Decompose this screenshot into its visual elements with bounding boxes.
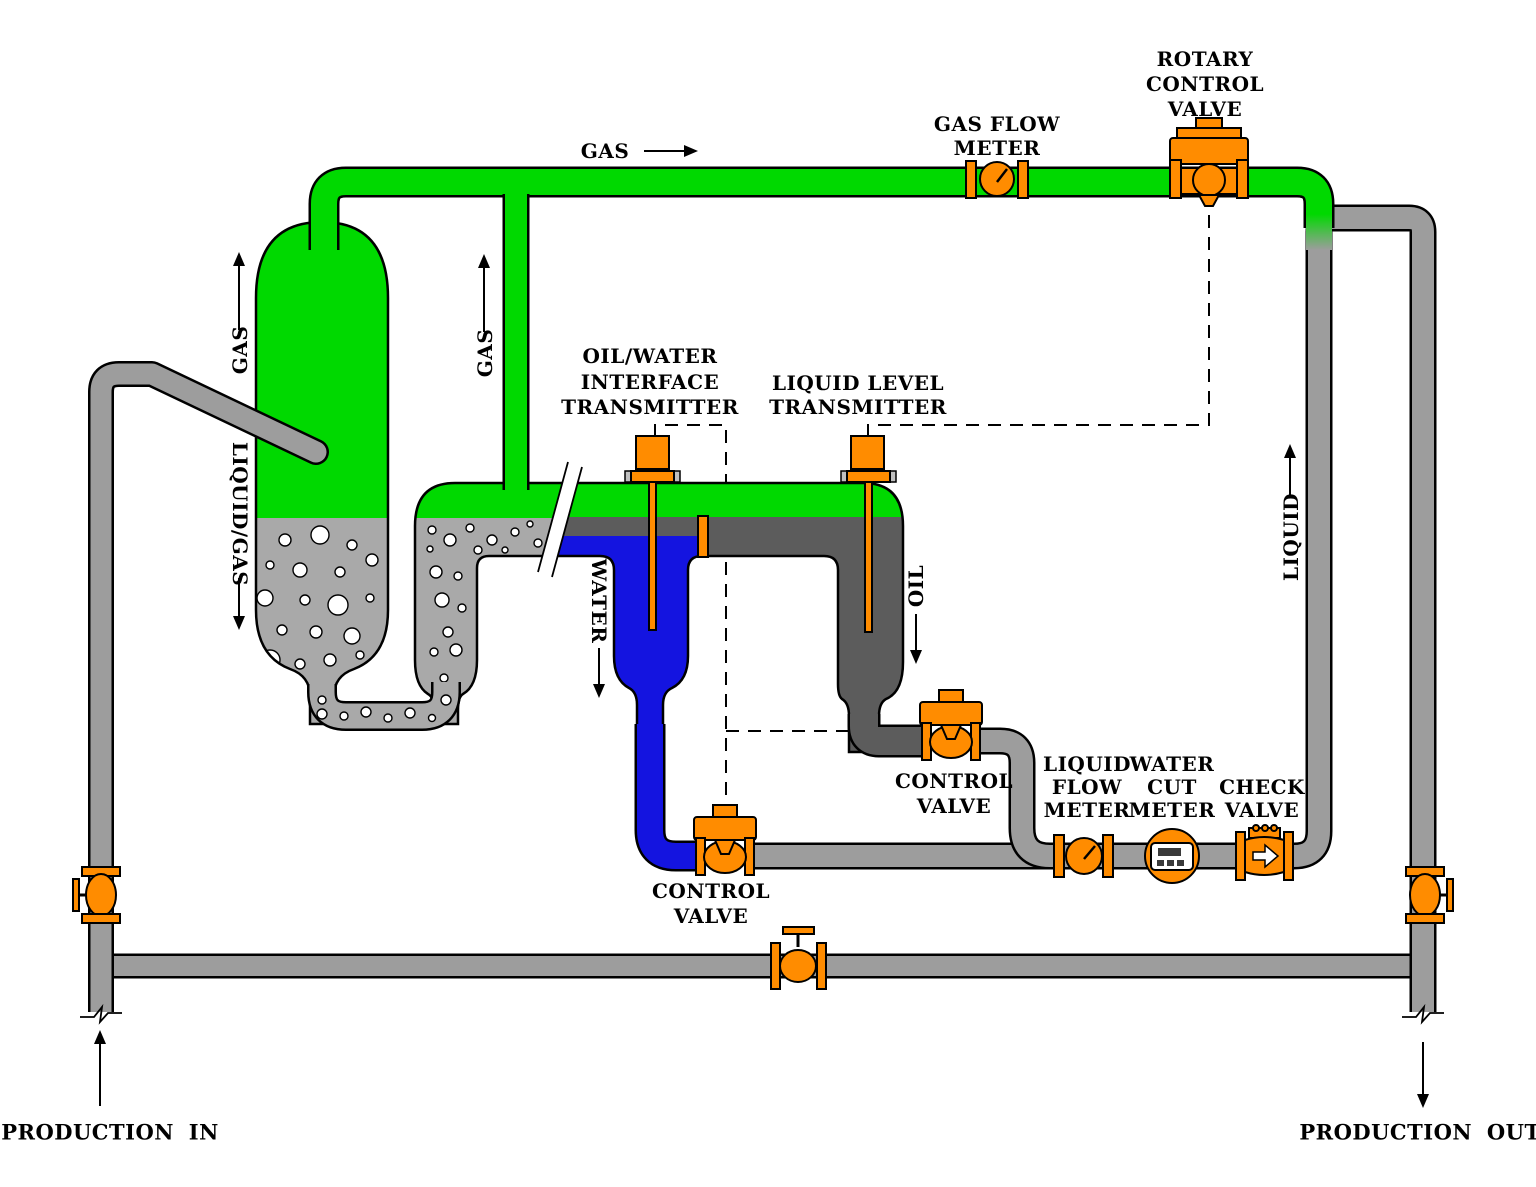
pipe-break-right — [1402, 1007, 1444, 1026]
production-out-label: PRODUCTION OUT — [1299, 1122, 1536, 1143]
rotary-control-valve-label: CONTROL — [1146, 74, 1264, 94]
oil-control-valve-label: CONTROL — [895, 771, 1013, 791]
water-stream-label: WATER — [589, 559, 609, 644]
oil-stream-label: OIL — [906, 565, 926, 607]
water-cut-meter-label: METER — [1129, 800, 1216, 820]
rotary-control-valve-icon — [1170, 118, 1248, 206]
liquid-up-arrow — [1284, 444, 1296, 498]
oil-control-valve-label: VALVE — [917, 796, 991, 816]
liquid-flow-meter-label: FLOW — [1052, 777, 1122, 797]
bypass-valve-icon — [771, 927, 826, 989]
process-diagram: GAS ROTARY CONTROL VALVE GAS FLOW METER … — [0, 0, 1536, 1187]
water-cut-meter-label: CUT — [1147, 777, 1197, 797]
gas-flow-meter-label: METER — [954, 138, 1041, 158]
oil-water-interface-transmitter-label: TRANSMITTER — [561, 397, 739, 417]
riser-gas-label: GAS — [475, 329, 495, 378]
gas-flow-meter-label: GAS FLOW — [934, 114, 1060, 134]
production-in-arrow — [94, 1030, 106, 1106]
oil-control-valve-icon — [920, 690, 982, 760]
water-cut-meter-label: WATER — [1130, 754, 1215, 774]
weir-plate — [698, 516, 708, 557]
gas-flow-arrow — [644, 145, 698, 157]
production-out-arrow — [1417, 1042, 1429, 1108]
oil-down-arrow — [910, 614, 922, 664]
liquid-level-transmitter-label: TRANSMITTER — [769, 397, 947, 417]
production-in-label: PRODUCTION IN — [1, 1122, 219, 1143]
vessel-gas-label: GAS — [230, 326, 250, 375]
gas-up-arrow — [233, 252, 245, 330]
gas-stream-label: GAS — [581, 141, 630, 161]
pipe-break-left — [80, 1007, 122, 1026]
vessel-liquid-gas-label: LIQUID/GAS — [230, 442, 250, 586]
liquid-flow-meter-label: METER — [1044, 800, 1131, 820]
oil-water-interface-transmitter-label: OIL/WATER — [583, 346, 718, 366]
oil-water-interface-transmitter-label: INTERFACE — [581, 372, 720, 392]
rotary-control-valve-label: ROTARY — [1157, 49, 1254, 69]
water-control-valve-label: VALVE — [674, 906, 748, 926]
diagram-canvas — [0, 0, 1536, 1187]
outlet-block-valve-icon — [1406, 867, 1453, 923]
water-control-valve-label: CONTROL — [652, 881, 770, 901]
water-cut-meter-icon — [1145, 829, 1199, 883]
check-valve-label: VALVE — [1225, 800, 1299, 820]
liquid-stream-label: LIQUID — [1281, 493, 1301, 581]
vertical-separator-vessel — [248, 214, 396, 733]
water-control-valve-icon — [694, 805, 756, 875]
gas-liquid-transition — [1306, 214, 1332, 250]
check-valve-label: CHECK — [1219, 777, 1305, 797]
liquid-flow-meter-label: LIQUID — [1043, 754, 1131, 774]
horizontal-separator-vessel — [410, 480, 910, 760]
inlet-block-valve-icon — [73, 867, 120, 923]
check-valve-icon — [1236, 825, 1293, 880]
rotary-control-valve-label: VALVE — [1168, 99, 1242, 119]
gas-flow-meter-icon — [966, 161, 1028, 198]
liquid-level-transmitter-label: LIQUID LEVEL — [772, 373, 944, 393]
water-down-arrow — [593, 648, 605, 698]
riser-gas-up-arrow — [478, 254, 490, 332]
liquid-flow-meter-icon — [1054, 835, 1113, 877]
